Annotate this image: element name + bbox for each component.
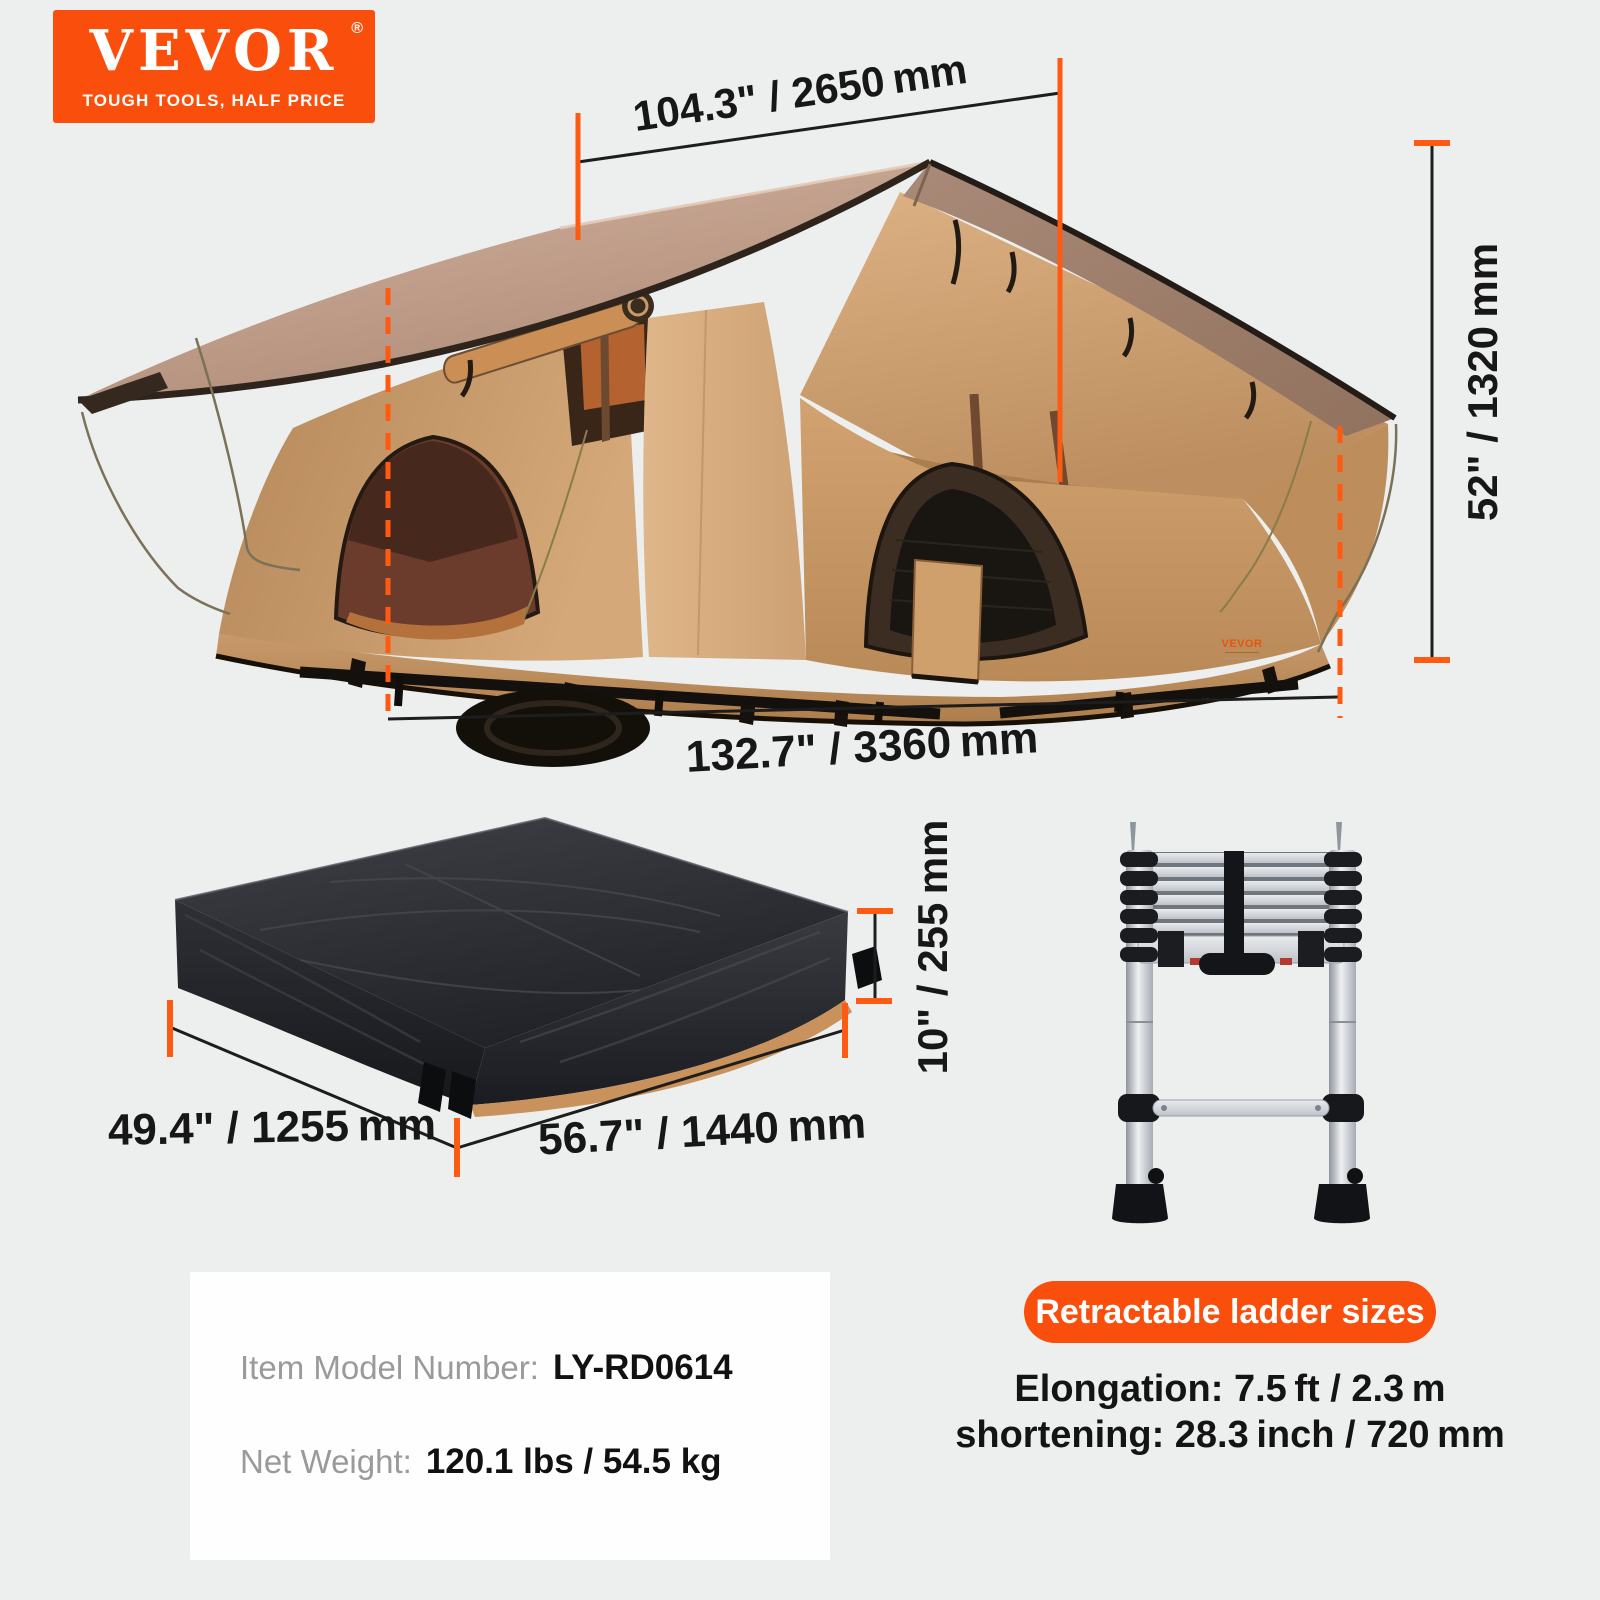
ladder-illustration — [1112, 822, 1370, 1223]
registered-mark: ® — [351, 20, 363, 38]
tent-illustration — [78, 162, 1396, 767]
ladder-handle — [1199, 953, 1275, 975]
ladder-foot-left — [1112, 1184, 1168, 1223]
tent-brand-tag-lines — [1225, 652, 1259, 659]
net-weight-value: 120.1 lbs / 54.5 kg — [426, 1442, 722, 1481]
vevor-logo: VEVOR ® TOUGH TOOLS, HALF PRICE — [53, 10, 375, 123]
dim-label-tent-height: 52" / 1320 mm — [1457, 122, 1509, 642]
model-number-label: Item Model Number: — [240, 1349, 539, 1386]
tent-center-flap — [643, 302, 806, 660]
dim-label-package-height: 10" / 255 mm — [907, 737, 959, 1157]
ladder-sizes-badge: Retractable ladder sizes — [1024, 1281, 1436, 1343]
vevor-logo-wordmark: VEVOR — [53, 18, 375, 84]
ladder-screw-right — [1315, 1105, 1321, 1111]
infographic-canvas: VEVOR ® TOUGH TOOLS, HALF PRICE 104.3" /… — [0, 0, 1600, 1600]
net-weight-label: Net Weight: — [240, 1443, 412, 1480]
model-number-value: LY-RD0614 — [553, 1348, 733, 1387]
ladder-foot-right — [1314, 1184, 1370, 1223]
tent-brand-tag-text: VEVOR — [1221, 638, 1262, 650]
ladder-shortening-text: shortening: 28.3 inch / 720 mm — [880, 1414, 1580, 1457]
ladder-spikes — [1130, 822, 1342, 852]
ladder-knob-left — [1148, 1168, 1164, 1184]
tent-door-flap — [912, 560, 982, 682]
vevor-logo-tagline: TOUGH TOOLS, HALF PRICE — [53, 91, 375, 111]
ladder-lower-rung — [1153, 1100, 1329, 1116]
ladder-screw-left — [1161, 1105, 1167, 1111]
tent-brand-tag: VEVOR — [1218, 639, 1266, 659]
net-weight-row: Net Weight:120.1 lbs / 54.5 kg — [240, 1442, 722, 1482]
ladder-elongation-text: Elongation: 7.5 ft / 2.3 m — [880, 1368, 1580, 1411]
ladder-strap — [1224, 851, 1244, 963]
dim-label-package-width: 49.4" / 1255 mm — [52, 1096, 493, 1160]
model-number-row: Item Model Number:LY-RD0614 — [240, 1348, 733, 1388]
ladder-knob-right — [1347, 1168, 1363, 1184]
spec-card: Item Model Number:LY-RD0614 Net Weight:1… — [190, 1272, 830, 1560]
